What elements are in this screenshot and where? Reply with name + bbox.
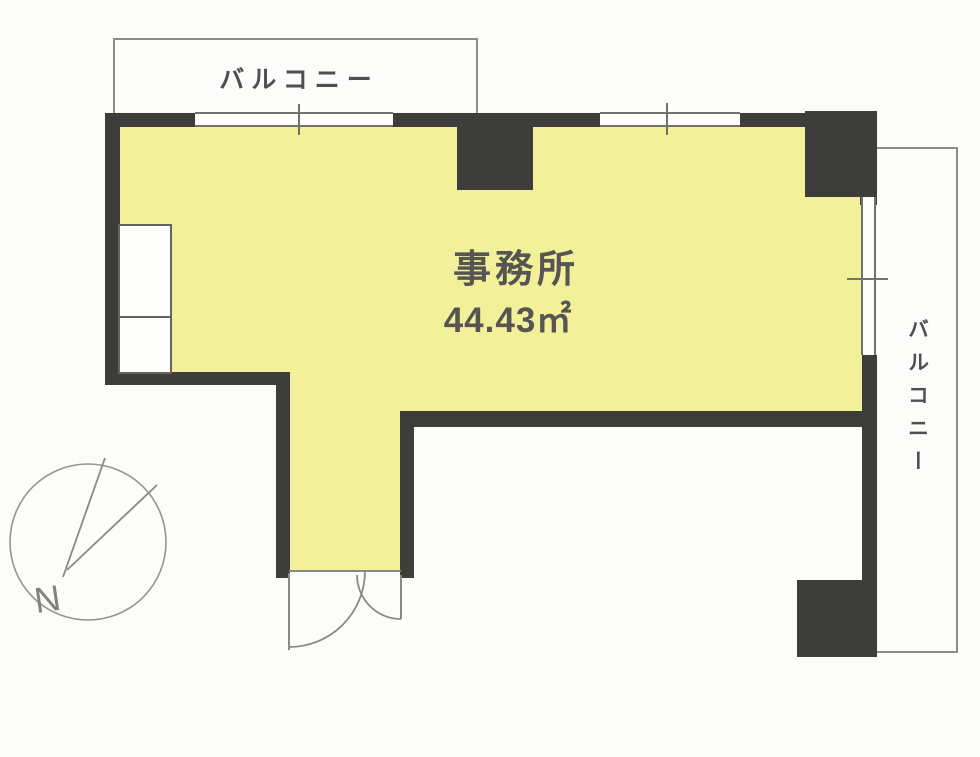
north-arrow-line-long xyxy=(63,458,105,577)
room-area-label: 44.43㎡ xyxy=(408,292,608,343)
compass-n-label: N xyxy=(32,577,63,621)
door-swing-arc-large xyxy=(289,571,365,647)
room-name-label: 事務所 xyxy=(416,238,616,293)
floor-plan: バルコニー バルコニー xyxy=(0,0,980,757)
annotation-layer: N xyxy=(0,0,980,757)
compass: N xyxy=(10,458,166,621)
